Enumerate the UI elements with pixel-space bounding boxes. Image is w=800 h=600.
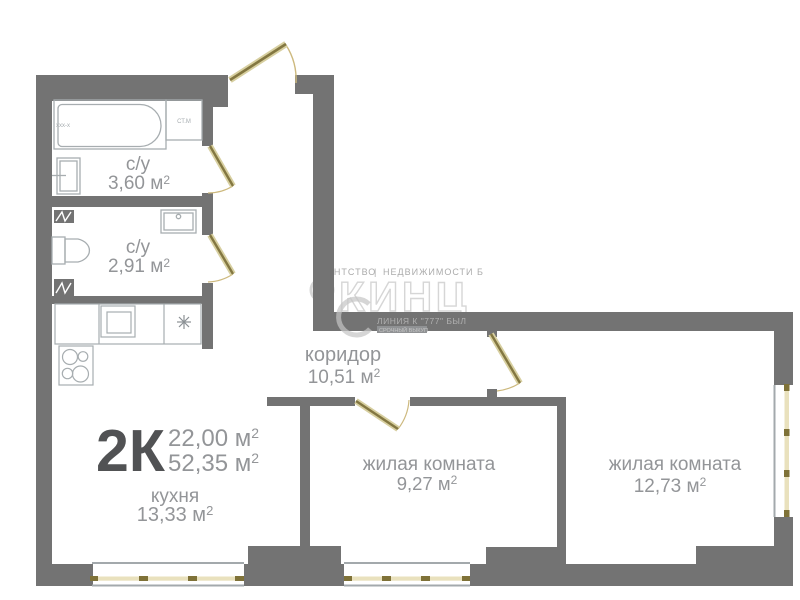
svg-text:12,73 м2: 12,73 м2 xyxy=(634,475,707,497)
svg-text:3,60 м2: 3,60 м2 xyxy=(108,173,170,194)
svg-text:xxx-x: xxx-x xyxy=(56,123,70,129)
svg-text:2К: 2К xyxy=(96,418,166,484)
svg-text:52,35 м2: 52,35 м2 xyxy=(168,450,259,477)
svg-text:9,27 м2: 9,27 м2 xyxy=(397,473,458,494)
svg-text:2,91 м2: 2,91 м2 xyxy=(108,256,170,277)
svg-text:коридор: коридор xyxy=(305,344,381,366)
svg-text:13,33 м2: 13,33 м2 xyxy=(137,503,214,526)
svg-text:22,00 м2: 22,00 м2 xyxy=(168,425,259,452)
svg-text:с/у: с/у xyxy=(126,237,151,258)
svg-text:СРОЧНЫЙ ВЫКУП: СРОЧНЫЙ ВЫКУП xyxy=(379,326,428,334)
svg-text:СТ.М: СТ.М xyxy=(177,119,191,125)
svg-text:жилая комната: жилая комната xyxy=(609,454,742,475)
svg-text:ЛИНИЯ К "777" БЫЛ: ЛИНИЯ К "777" БЫЛ xyxy=(377,316,467,326)
svg-text:с/у: с/у xyxy=(126,154,151,175)
svg-text:10,51 м2: 10,51 м2 xyxy=(308,366,381,388)
svg-text:жилая комната: жилая комната xyxy=(363,454,496,475)
